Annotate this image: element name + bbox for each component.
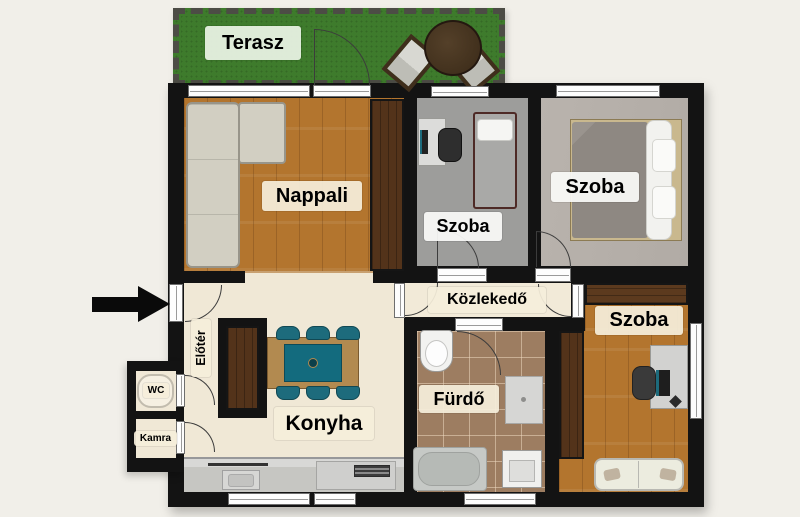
floor-plan-canvas: Terasz Nappali Szoba [0, 0, 800, 517]
nappali-window [188, 85, 310, 97]
szoba-also-chair [632, 366, 656, 400]
szoba-kis-chair [438, 128, 462, 162]
szoba-kis-window [431, 86, 489, 97]
kitchen-hob-grill [354, 465, 390, 477]
dining-chair-6 [336, 386, 360, 400]
entrance-arrow-head [138, 286, 170, 322]
nappali-konyha-opening [245, 271, 373, 285]
wc-door [176, 374, 185, 407]
konyha-window-1 [228, 493, 310, 505]
terrace-table [424, 20, 482, 76]
szoba-also-monitor [656, 370, 670, 396]
furdo-bathtub-inner [418, 452, 480, 486]
szoba-also-wardrobe-left [559, 331, 584, 459]
dining-chair-4 [276, 386, 300, 400]
furdo-sink-drain [521, 397, 526, 402]
kamra-label: Kamra [134, 431, 177, 446]
szoba-kis-door [437, 268, 487, 282]
szoba-kis-label: Szoba [424, 212, 502, 241]
szoba-nagy-door [535, 268, 571, 282]
szoba-also-window [690, 323, 702, 419]
konyha-closet [226, 326, 259, 410]
furdo-toilet-seat [425, 340, 448, 367]
kitchen-vent-strip [208, 463, 268, 466]
szoba-nagy-pillow-2 [652, 186, 676, 219]
sofa-l-chaise [238, 102, 286, 164]
terrace-label: Terasz [205, 26, 301, 60]
szoba-nagy-window [556, 85, 660, 97]
dining-chair-1 [276, 326, 300, 340]
nappali-label: Nappali [262, 181, 362, 211]
sofa-l-vertical [186, 102, 240, 268]
dining-chair-5 [306, 386, 330, 400]
wc-label: WC [143, 383, 169, 398]
szoba-also-sofa-divider [638, 461, 639, 488]
konyha-window-2 [314, 493, 356, 505]
furdo-window [464, 493, 536, 505]
dining-table-medallion [308, 358, 318, 368]
furdo-door [455, 318, 503, 331]
furdo-washing-machine-door [509, 460, 535, 482]
terrace-door-sill [313, 85, 371, 97]
dining-chair-3 [336, 326, 360, 340]
szoba-nagy-label: Szoba [551, 172, 639, 202]
kitchen-oven-inner [228, 474, 254, 487]
entrance-arrow-shaft [92, 297, 138, 312]
konyha-label: Konyha [274, 407, 374, 440]
szoba-also-door [572, 284, 584, 318]
eloter-label: Előtér [191, 319, 211, 377]
furdo-label: Fürdő [419, 385, 499, 413]
szoba-kis-monitor [420, 130, 428, 154]
konyha-kozlekedo-door [394, 283, 405, 318]
szoba-kis-pillow [477, 119, 513, 141]
szoba-also-wardrobe-top [585, 283, 688, 305]
kamra-door [176, 421, 185, 454]
dining-chair-2 [306, 326, 330, 340]
szoba-nagy-pillow-1 [652, 139, 676, 172]
szoba-nagy-duvet [646, 120, 672, 240]
kozlekedo-label: Közlekedő [428, 287, 546, 313]
entrance-door [169, 284, 183, 322]
nappali-wardrobe [370, 99, 404, 271]
szoba-also-label: Szoba [595, 306, 683, 335]
